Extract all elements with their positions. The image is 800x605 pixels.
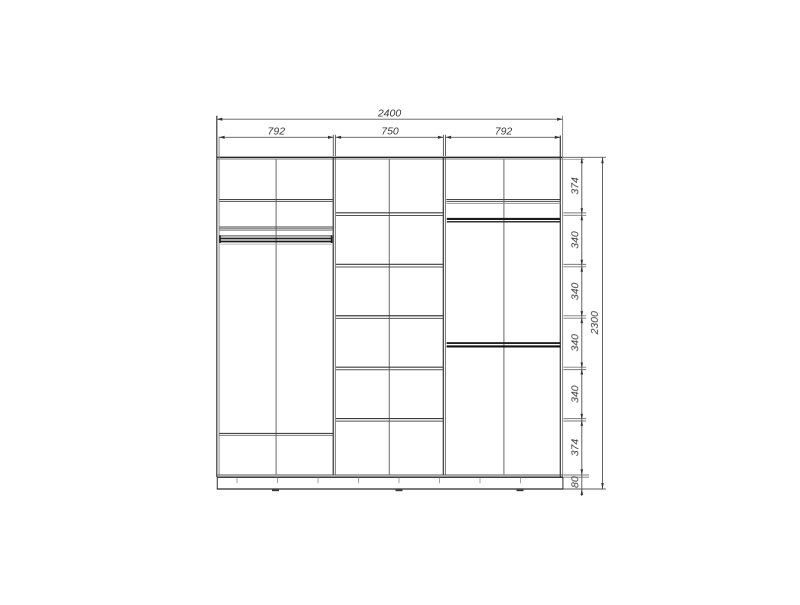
svg-text:340: 340 xyxy=(569,334,581,352)
svg-text:792: 792 xyxy=(495,126,513,138)
svg-text:340: 340 xyxy=(569,282,581,300)
svg-text:340: 340 xyxy=(569,385,581,403)
svg-text:750: 750 xyxy=(381,126,399,138)
svg-text:792: 792 xyxy=(268,126,286,138)
svg-text:80: 80 xyxy=(569,476,581,488)
svg-text:340: 340 xyxy=(569,231,581,249)
svg-text:2400: 2400 xyxy=(377,107,402,119)
svg-text:374: 374 xyxy=(569,177,581,195)
svg-text:2300: 2300 xyxy=(589,311,601,336)
svg-text:374: 374 xyxy=(569,439,581,457)
